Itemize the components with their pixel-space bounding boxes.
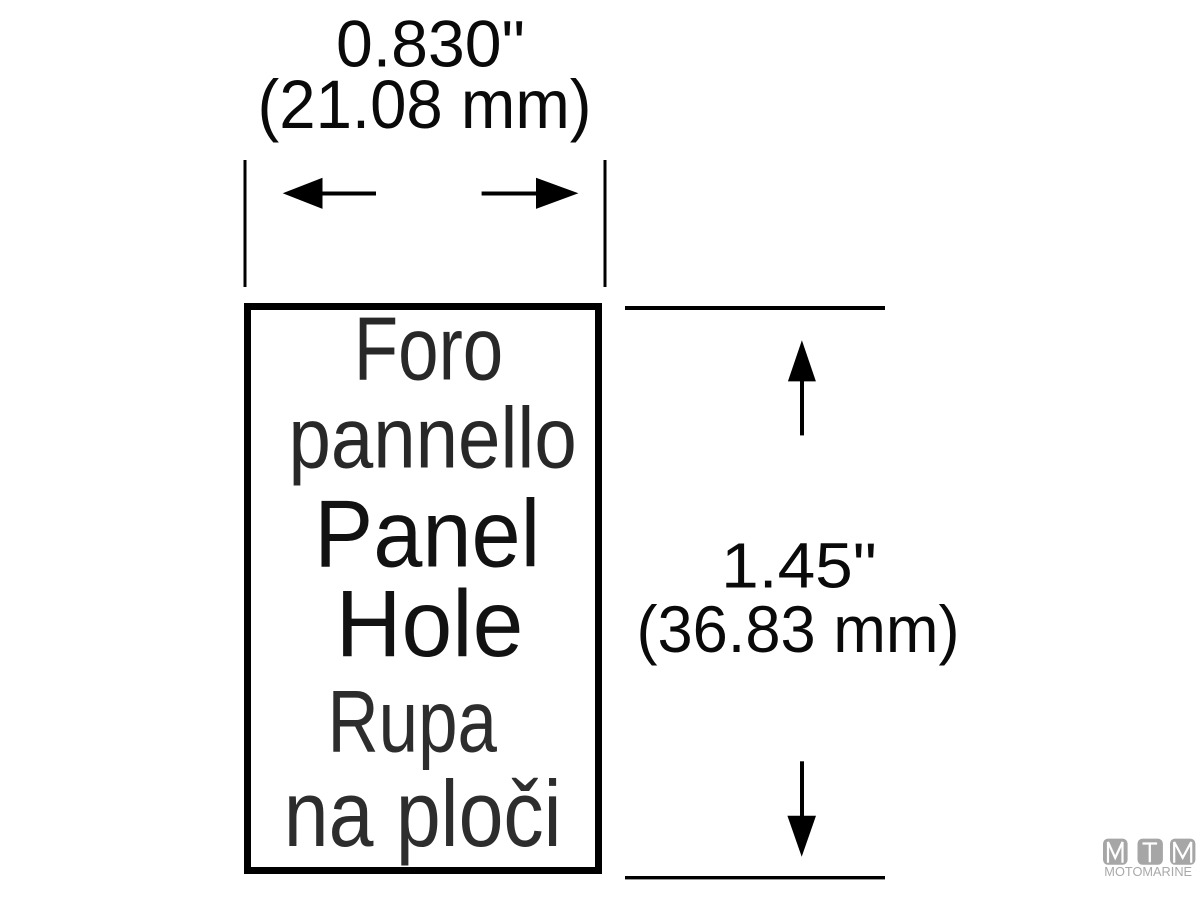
svg-text:(21.08 mm): (21.08 mm): [258, 66, 592, 143]
svg-text:MOTOMARINE: MOTOMARINE: [1104, 864, 1192, 879]
svg-text:(36.83 mm): (36.83 mm): [637, 593, 960, 666]
svg-text:1.45": 1.45": [721, 530, 877, 602]
svg-text:Foro: Foro: [354, 299, 503, 400]
svg-text:Rupa: Rupa: [327, 673, 497, 771]
svg-text:Hole: Hole: [336, 571, 524, 676]
svg-text:pannello: pannello: [288, 390, 576, 486]
svg-text:na ploči: na ploči: [284, 761, 562, 866]
